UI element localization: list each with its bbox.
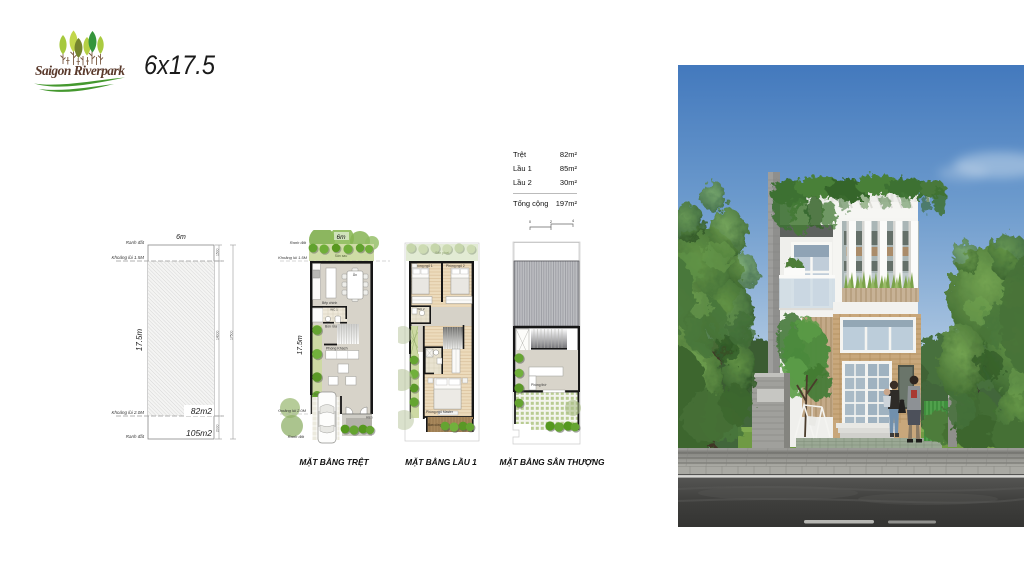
svg-text:1500: 1500 (216, 248, 220, 256)
svg-text:Khoảng lùi 1.5M: Khoảng lùi 1.5M (111, 254, 144, 260)
svg-text:Ăn: Ăn (353, 273, 357, 277)
svg-text:Phòng ngủ 2: Phòng ngủ 2 (446, 264, 465, 268)
svg-text:82m2: 82m2 (191, 406, 213, 416)
svg-text:Sân phơi: Sân phơi (435, 251, 449, 255)
svg-text:Ranh đất: Ranh đất (126, 239, 145, 245)
svg-text:6m: 6m (176, 234, 186, 241)
svg-text:0: 0 (529, 219, 532, 224)
svg-text:Bồn rửa: Bồn rửa (325, 325, 337, 329)
svg-text:Sân sau: Sân sau (335, 254, 348, 258)
svg-text:Ranh đất: Ranh đất (126, 433, 145, 439)
svg-text:Bếp chính: Bếp chính (322, 301, 337, 305)
svg-text:Ban công: Ban công (428, 423, 442, 427)
svg-text:2: 2 (550, 219, 553, 224)
svg-text:Khoảng lùi 1.5M: Khoảng lùi 1.5M (278, 255, 308, 260)
svg-text:Ranh đất: Ranh đất (288, 434, 305, 439)
svg-text:Khoảng lùi 2.0M: Khoảng lùi 2.0M (278, 408, 307, 413)
svg-text:WC 2: WC 2 (417, 307, 425, 311)
svg-text:Phòng ngủ Master: Phòng ngủ Master (426, 410, 454, 414)
svg-text:Saigon Riverpark: Saigon Riverpark (35, 63, 125, 78)
svg-text:14000: 14000 (216, 330, 220, 340)
svg-text:WC 1: WC 1 (330, 308, 338, 312)
svg-text:2000: 2000 (216, 424, 220, 432)
svg-text:4: 4 (572, 218, 575, 223)
svg-text:Hiên: Hiên (366, 416, 373, 420)
svg-text:Ranh đất: Ranh đất (290, 240, 307, 245)
svg-text:Phòng thờ: Phòng thờ (531, 383, 547, 387)
svg-text:6m: 6m (336, 234, 346, 241)
svg-text:17500: 17500 (230, 330, 234, 340)
svg-text:17.5m: 17.5m (135, 329, 144, 352)
svg-text:Khoảng lùi 2.0M: Khoảng lùi 2.0M (111, 409, 144, 415)
svg-text:17.5m: 17.5m (297, 335, 304, 355)
svg-text:Phòng Khách: Phòng Khách (326, 347, 348, 351)
svg-text:105m2: 105m2 (186, 428, 212, 438)
